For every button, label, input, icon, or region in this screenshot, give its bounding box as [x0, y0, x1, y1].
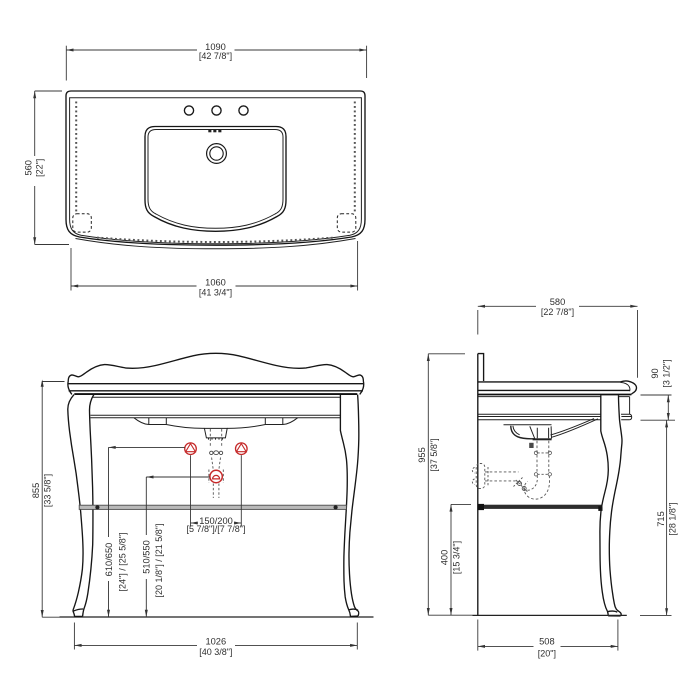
svg-text:855: 855 [31, 483, 41, 499]
svg-text:1026: 1026 [205, 637, 226, 647]
svg-text:[22 7/8"]: [22 7/8"] [541, 307, 574, 317]
svg-text:[5 7/8"]/[7 7/8"]: [5 7/8"]/[7 7/8"] [187, 524, 246, 534]
svg-text:955: 955 [417, 447, 427, 463]
svg-text:[33 5/8"]: [33 5/8"] [42, 474, 52, 507]
svg-text:[37 5/8"]: [37 5/8"] [429, 438, 439, 471]
svg-text:[15 3/4"]: [15 3/4"] [451, 541, 461, 574]
svg-text:[3 1/2"]: [3 1/2"] [661, 359, 671, 387]
svg-text:508: 508 [539, 636, 555, 646]
svg-text:1060: 1060 [205, 278, 226, 288]
svg-text:[22"]: [22"] [34, 159, 44, 177]
svg-text:[41 3/4"]: [41 3/4"] [199, 287, 232, 297]
svg-text:610/650: 610/650 [104, 543, 114, 577]
svg-text:[20"]: [20"] [538, 648, 556, 658]
svg-text:510/550: 510/550 [142, 540, 152, 574]
svg-text:[40 3/8"]: [40 3/8"] [199, 647, 232, 657]
svg-text:[24"] / [25 5/8"]: [24"] / [25 5/8"] [117, 533, 127, 592]
svg-text:580: 580 [550, 297, 566, 307]
svg-text:[42 7/8"]: [42 7/8"] [199, 51, 232, 61]
svg-text:715: 715 [656, 511, 666, 527]
svg-text:90: 90 [650, 368, 660, 378]
svg-text:[20 1/8"] / [21 5/8"]: [20 1/8"] / [21 5/8"] [154, 524, 164, 598]
svg-text:560: 560 [23, 160, 33, 176]
svg-text:[28 1/8"]: [28 1/8"] [667, 502, 677, 535]
svg-text:400: 400 [440, 550, 450, 566]
